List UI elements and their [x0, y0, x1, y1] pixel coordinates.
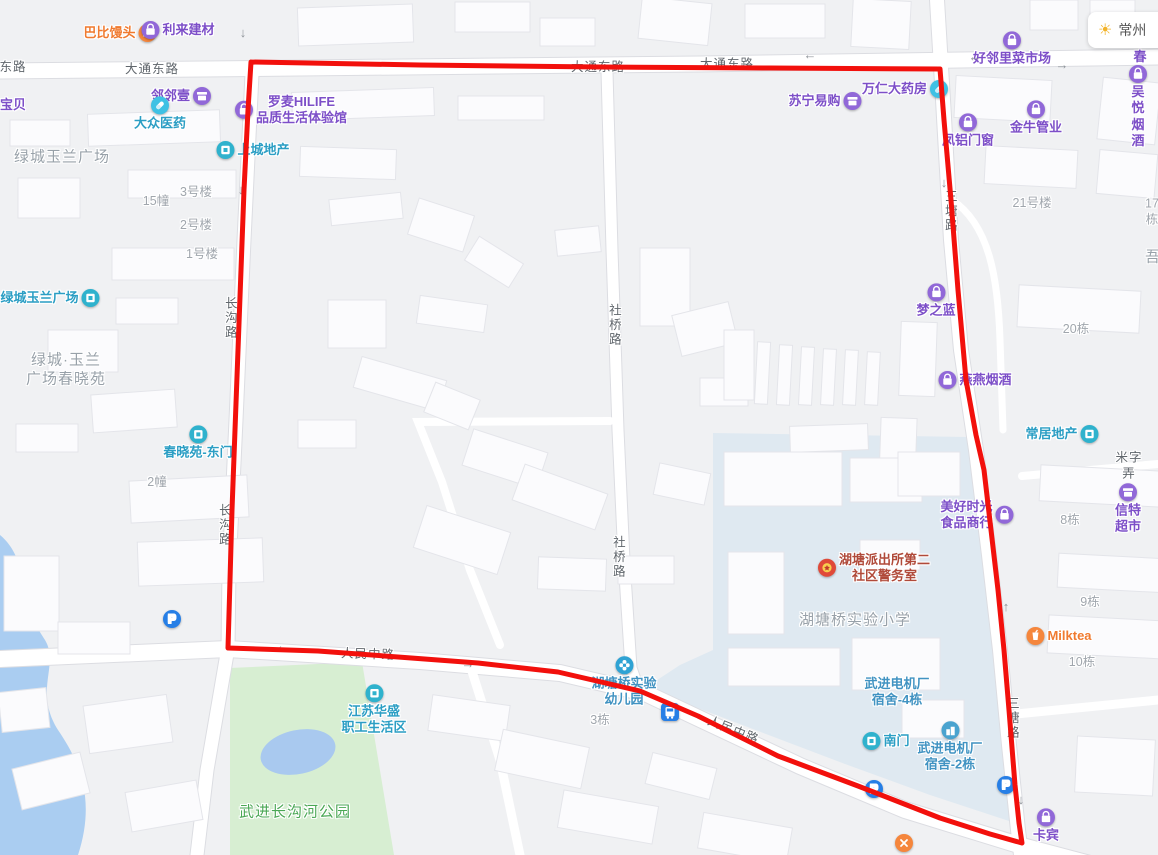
label-text: 米字弄 [1115, 450, 1144, 481]
label-text: 武进电机厂 宿舍-4栋 [864, 676, 929, 709]
area-wu-partial: 吾 [1145, 249, 1158, 268]
label-text: 湖塘派出所第二 社区警务室 [839, 552, 930, 585]
label-text: 3号楼 [180, 185, 212, 201]
poi-wanren-dayaofang[interactable]: 万仁大药房 [862, 80, 948, 98]
parking-icon-southeast[interactable]: P [997, 776, 1015, 794]
flower-icon[interactable] [615, 656, 633, 674]
label-text: 凤铝门窗 [942, 132, 994, 148]
door-icon[interactable] [862, 732, 880, 750]
oneway-arrow: ↑ [1003, 599, 1010, 615]
label-text: ← [804, 47, 817, 63]
poi-yanyan-yanjiu[interactable]: 燕燕烟酒 [938, 371, 1011, 389]
parking-icon[interactable]: P [865, 780, 883, 798]
poi-dazhong-yiyao[interactable]: 大众医药 [134, 96, 186, 131]
label-text: 美好时光 食品商行 [940, 499, 992, 532]
label-text: 绿城玉兰广场 [14, 149, 110, 168]
label-text: 春晓苑-东门 [163, 444, 232, 460]
pill-icon[interactable] [151, 96, 169, 114]
poi-haolinli-caishichang[interactable]: 好邻里菜市场 [973, 31, 1051, 66]
bldg-9dong: 9栋 [1080, 595, 1099, 611]
poi-lilai-jiancai[interactable]: 利来建材 [141, 21, 214, 39]
label-text: 吴悦烟酒 [1128, 84, 1148, 149]
label-text: 利来建材 [162, 22, 214, 38]
label-text: 苏宁易购 [788, 93, 840, 109]
poi-xinte-chaoshi[interactable]: 信特超市 [1113, 483, 1143, 535]
label-text: 21号楼 [1013, 196, 1052, 212]
building-icon[interactable] [941, 721, 959, 739]
label-text: ← [277, 638, 290, 654]
label-text: ↓ [238, 182, 245, 198]
label-text: ↓ [1018, 792, 1025, 808]
door-icon[interactable] [1081, 425, 1099, 443]
bldg-2haolou: 2号楼 [180, 218, 212, 234]
bag-icon[interactable] [1129, 65, 1147, 83]
bldg-1haolou: 1号楼 [186, 247, 218, 263]
label-text: 长沟路 [215, 503, 231, 547]
oneway-arrow: ← [804, 47, 817, 63]
map-canvas[interactable]: 巴比馒头利来建材东路大通东路大通东路大通东路好邻里菜市场听春邻邻壹宝贝大众医药罗… [0, 0, 1158, 855]
poi-jiangsu-huasheng[interactable]: 江苏华盛 职工生活区 [341, 684, 406, 736]
label-text: 湖塘桥实验 幼儿园 [591, 675, 656, 708]
label-text: 卡宾 [1033, 827, 1059, 843]
poi-shangcheng-dichan[interactable]: 上城地产 [216, 141, 289, 159]
sun-icon: ☀ [1098, 20, 1112, 40]
bag-icon[interactable] [927, 283, 945, 301]
label-text: 15幢 [143, 194, 169, 210]
bldg-2zhuang: 2幢 [147, 475, 166, 491]
oneway-arrow: ← [969, 49, 982, 65]
label-text: 大通东路 [571, 60, 625, 76]
label-text: 武进长沟河公园 [239, 804, 351, 823]
label-text: 长沟路 [221, 296, 237, 340]
road-label-santanglu-1: 三塘路 [941, 189, 957, 233]
label-text: 巴比馒头 [83, 25, 135, 41]
oneway-arrow: ← [277, 638, 290, 654]
parking-icon[interactable]: P [163, 610, 181, 628]
door-icon[interactable] [365, 684, 383, 702]
label-text: 2号楼 [180, 218, 212, 234]
label-text: 大众医药 [134, 115, 186, 131]
poi-meihao-shiguang[interactable]: 美好时光 食品商行 [940, 499, 1013, 532]
label-text: 金牛管业 [1010, 119, 1062, 135]
label-text: 20栋 [1063, 322, 1089, 338]
label-text: → [1056, 57, 1069, 73]
parking-icon-west[interactable]: P [163, 610, 181, 628]
poi-changju-dichan[interactable]: 常居地产 [1025, 425, 1098, 443]
bag-icon[interactable] [235, 101, 253, 119]
label-text: 三塘路 [1003, 696, 1019, 740]
label-text: 9栋 [1080, 595, 1099, 611]
shop-icon[interactable] [193, 87, 211, 105]
road-label-renmin-zhonglu-1: 人民中路 [341, 646, 396, 664]
oneway-arrow: ↓ [238, 182, 245, 198]
label-text: 燕燕烟酒 [959, 372, 1011, 388]
poi-nanmen[interactable]: 南门 [862, 732, 909, 750]
close-icon[interactable] [895, 834, 913, 852]
bldg-15zhuang: 15幢 [143, 194, 169, 210]
svg-text:P: P [870, 784, 878, 796]
poi-fenglv-menchuang[interactable]: 凤铝门窗 [942, 113, 994, 148]
label-text: 绿城玉兰广场 [0, 290, 78, 306]
bus-icon[interactable] [661, 703, 679, 721]
label-text: 10栋 [1069, 655, 1095, 671]
label-text: 2幢 [147, 475, 166, 491]
area-wujin-changgouhe-park: 武进长沟河公园 [239, 804, 351, 823]
label-text: 吾 [1145, 249, 1158, 268]
svg-text:P: P [1002, 780, 1010, 792]
bag-icon[interactable] [1003, 31, 1021, 49]
label-text: → [462, 656, 475, 672]
bldg-17dong: 17栋 [1145, 196, 1158, 227]
road-label-changgoulu-2: 长沟路 [215, 503, 231, 547]
poi-chunxiaoyuan-dongmen[interactable]: 春晓苑-东门 [163, 425, 232, 460]
svg-text:P: P [168, 614, 176, 626]
poi-hutangqiao-youeryuan[interactable]: 湖塘桥实验 幼儿园 [591, 656, 656, 708]
poi-baobei[interactable]: 宝贝 [0, 97, 26, 113]
label-text: ↓ [959, 320, 966, 336]
label-text: 1号楼 [186, 247, 218, 263]
parking-icon-south[interactable]: P [865, 780, 883, 798]
label-text: ↓ [240, 25, 247, 41]
bag-icon[interactable] [959, 113, 977, 131]
oneway-arrow: ↓ [959, 320, 966, 336]
road-label-santanglu-2: 三塘路 [1003, 696, 1019, 740]
label-text: 南门 [883, 733, 909, 749]
label-text: 大通东路 [700, 57, 754, 73]
bldg-10dong: 10栋 [1069, 655, 1095, 671]
poi-suning-yigou[interactable]: 苏宁易购 [788, 92, 861, 110]
label-text: 3栋 [590, 713, 609, 729]
label-text: ↑ [1003, 599, 1010, 615]
label-text: ↓ [941, 175, 948, 191]
bag-icon[interactable] [938, 371, 956, 389]
poi-hutang-paichusuo[interactable]: 湖塘派出所第二 社区警务室 [818, 552, 930, 585]
oneway-arrow: ↓ [1018, 792, 1025, 808]
road-closed-icon[interactable] [895, 834, 913, 852]
label-text: 湖塘桥实验小学 [799, 612, 911, 631]
label-text: 武进电机厂 宿舍-2栋 [917, 740, 982, 773]
shop-icon[interactable] [1119, 483, 1137, 501]
bag-icon[interactable] [1027, 100, 1045, 118]
label-text: 罗麦HILIFE 品质生活体验馆 [256, 94, 347, 127]
oneway-arrow: ↓ [240, 25, 247, 41]
bus-stop-icon[interactable] [661, 703, 679, 721]
road-label-donglu: 东路 [0, 60, 27, 76]
road-label-mizilong: 米字弄 [1115, 450, 1144, 481]
poi-lvcheng-yulan-guangchang[interactable]: 绿城玉兰广场 [0, 289, 99, 307]
label-text: 绿城·玉兰 广场春晓苑 [26, 351, 106, 389]
poi-jinniu-guanye[interactable]: 金牛管业 [1010, 100, 1062, 135]
label-text: 万仁大药房 [862, 81, 927, 97]
door-icon[interactable] [216, 141, 234, 159]
label-text: 人民中路 [341, 646, 396, 664]
pill-icon[interactable] [930, 80, 948, 98]
door-icon[interactable] [82, 289, 100, 307]
label-text: Milktea [1047, 628, 1091, 644]
label-text: 好邻里菜市场 [973, 50, 1051, 66]
bag-icon[interactable] [996, 506, 1014, 524]
road-label-datong-donglu-3: 大通东路 [700, 57, 754, 73]
area-lvcheng-yulan-chunxiaoyuan: 绿城·玉兰 广场春晓苑 [26, 351, 106, 389]
cup-icon[interactable] [1026, 627, 1044, 645]
poi-dianjichang-sushe-4dong[interactable]: 武进电机厂 宿舍-4栋 [864, 676, 929, 709]
weather-city: 常州 [1118, 20, 1146, 40]
label-text: 宝贝 [0, 97, 26, 113]
road-label-sheqiaolu-1: 社桥路 [605, 303, 621, 347]
label-text: 上城地产 [237, 142, 289, 158]
weather-widget[interactable]: ☀ 常州 [1088, 12, 1158, 48]
label-text: ← [969, 49, 982, 65]
label-text: 江苏华盛 职工生活区 [341, 703, 406, 736]
bag-icon[interactable] [141, 21, 159, 39]
label-text: 社桥路 [605, 303, 621, 347]
road-label-datong-donglu-2: 大通东路 [571, 60, 625, 76]
label-text: 三塘路 [941, 189, 957, 233]
label-text: 大通东路 [125, 62, 179, 78]
road-label-changgoulu-1: 长沟路 [221, 296, 237, 340]
bldg-3dong: 3栋 [590, 713, 609, 729]
police-icon[interactable] [818, 559, 836, 577]
label-text: 8栋 [1060, 513, 1079, 529]
oneway-arrow: → [462, 656, 475, 672]
area-lvcheng-yulan-guangchang: 绿城玉兰广场 [14, 149, 110, 168]
bldg-8dong: 8栋 [1060, 513, 1079, 529]
label-text: 梦之蓝 [916, 302, 955, 318]
poi-luomai-hilife[interactable]: 罗麦HILIFE 品质生活体验馆 [235, 94, 347, 127]
parking-icon[interactable]: P [997, 776, 1015, 794]
bldg-3haolou: 3号楼 [180, 185, 212, 201]
area-hutangqiao-shiyan-xiaoxue: 湖塘桥实验小学 [799, 612, 911, 631]
road-label-datong-donglu-1: 大通东路 [125, 62, 179, 78]
label-text: 社桥路 [609, 535, 625, 579]
poi-mengzhilan[interactable]: 梦之蓝 [916, 283, 955, 318]
label-text: 常居地产 [1025, 426, 1077, 442]
label-text: 17栋 [1145, 196, 1158, 227]
door-icon[interactable] [189, 425, 207, 443]
poi-wuyue-yanjiu[interactable]: 吴悦烟酒 [1128, 65, 1148, 149]
oneway-arrow: → [1056, 57, 1069, 73]
oneway-arrow: ↓ [941, 175, 948, 191]
label-text: 信特超市 [1113, 502, 1143, 535]
poi-kabin[interactable]: 卡宾 [1033, 808, 1059, 843]
bldg-20dong: 20栋 [1063, 322, 1089, 338]
bag-icon[interactable] [1037, 808, 1055, 826]
shop-icon[interactable] [844, 92, 862, 110]
bldg-21haolou: 21号楼 [1013, 196, 1052, 212]
poi-milktea[interactable]: Milktea [1026, 627, 1091, 645]
poi-dianjichang-sushe-2dong[interactable]: 武进电机厂 宿舍-2栋 [917, 721, 982, 773]
road-label-sheqiaolu-2: 社桥路 [609, 535, 625, 579]
label-text: 东路 [0, 60, 27, 76]
